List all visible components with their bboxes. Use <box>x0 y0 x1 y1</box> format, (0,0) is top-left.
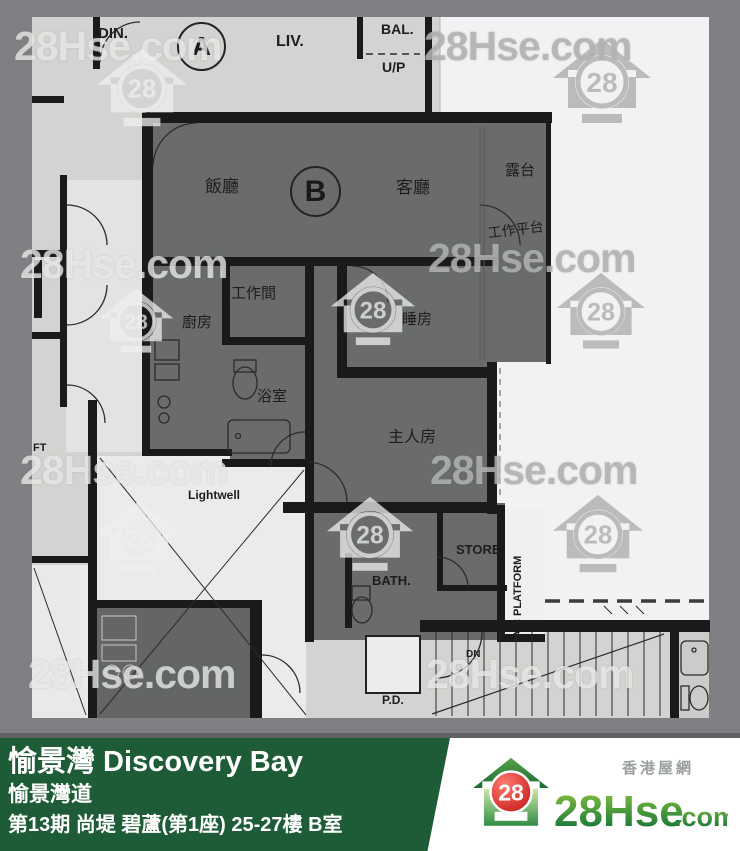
property-banner: 愉景灣 Discovery Bay 愉景灣道 第13期 尚堤 碧蘆(第1座) 2… <box>0 738 450 851</box>
street-name: 愉景灣道 <box>8 780 450 810</box>
unit-detail: 第13期 尚堤 碧蘆(第1座) 25-27樓 B室 <box>8 811 450 839</box>
logo-badge: 28 <box>498 779 524 805</box>
estate-name: 愉景灣 Discovery Bay <box>8 744 450 780</box>
floorplan-page: DIN.LIV.BAL.U/P飯廳客廳露台工作平台工作間廚房睡房浴室主人房Lig… <box>0 0 740 851</box>
site-tagline: 香港屋網 <box>622 757 694 778</box>
logo-name: 28Hse <box>554 787 684 836</box>
logo-house-icon: 28 <box>471 757 551 827</box>
logo-tld: .com <box>674 802 728 832</box>
floorplan-drawing <box>0 0 740 851</box>
